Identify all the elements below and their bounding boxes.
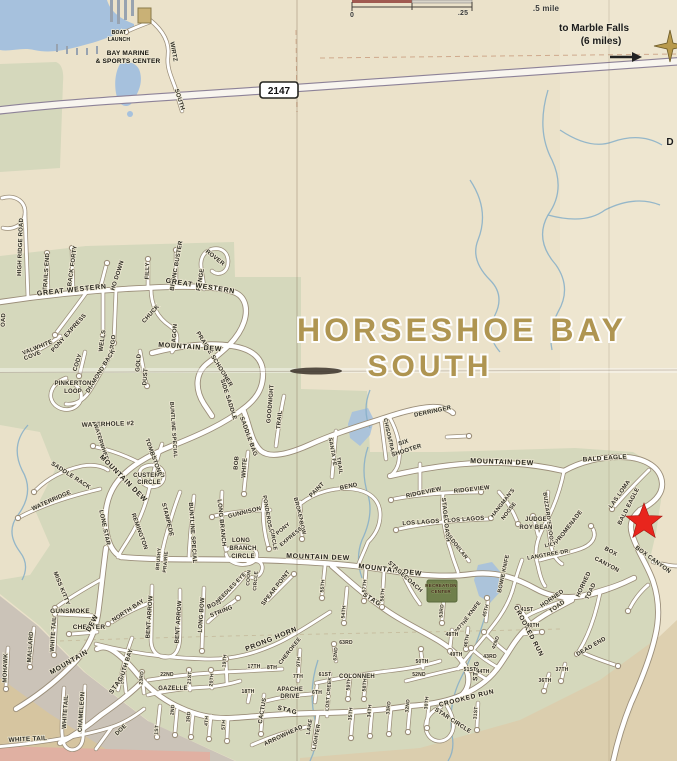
map-label: 2ND xyxy=(170,704,177,715)
map-canvas: 2147 HORSESHOE BAY SOUTH BOATLAUNCHBAY M… xyxy=(0,0,677,761)
map-label: 55TH xyxy=(319,579,326,593)
map-label: 52ND xyxy=(412,672,426,678)
map-label: 44TH xyxy=(476,669,489,675)
map-label: 57TH xyxy=(361,579,368,593)
map-label: 9TH xyxy=(296,656,303,667)
map-label: MOHAWK xyxy=(2,653,9,683)
map-label: JUDGE xyxy=(525,517,547,523)
highway-2147-shield: 2147 xyxy=(260,82,298,98)
map-label: .25 xyxy=(458,10,468,17)
map-label: to Marble Falls xyxy=(559,23,629,34)
map-label: CIRCLE xyxy=(231,554,255,560)
map-label: FILLY xyxy=(145,262,152,279)
map-label: 33RD xyxy=(385,701,392,715)
map-label: 34TH xyxy=(366,704,373,718)
map-label: 36TH xyxy=(538,678,551,684)
map-label: BOB xyxy=(233,455,240,470)
map-label: OAD xyxy=(1,312,7,327)
map-label: 4TH xyxy=(204,715,211,726)
map-label: 62ND xyxy=(332,647,339,661)
highway-shield-number: 2147 xyxy=(268,86,291,97)
map-label: GUNSMOKE xyxy=(50,608,90,615)
map-label: LAUNCH xyxy=(108,37,130,43)
map-label: 8TH xyxy=(267,665,277,671)
map-label: BAY MARINE xyxy=(107,50,150,57)
map-label: 43RD xyxy=(483,654,497,660)
map-label: 19TH xyxy=(221,654,228,668)
map-label: 30TH xyxy=(423,696,430,710)
map-label: 37TH xyxy=(555,667,568,673)
map-label: 48TH xyxy=(445,632,458,638)
map-label: 22ND xyxy=(160,672,174,678)
map-label: APACHE xyxy=(277,687,303,693)
map-label: LOOP xyxy=(64,389,82,395)
map-label: D xyxy=(666,137,673,148)
map-label: 35TH xyxy=(347,707,354,721)
map-label: RECREATION xyxy=(425,583,456,588)
region-title-line1: HORSESHOE BAY xyxy=(297,312,627,348)
map-label: 63RD xyxy=(339,640,353,646)
map-label: DRIVE xyxy=(280,694,299,700)
map-label: 40TH xyxy=(526,623,539,629)
map-label: CENTER xyxy=(431,589,451,594)
map-label: 3RD xyxy=(186,711,193,722)
map-label: CIRCLE xyxy=(137,480,161,486)
map-label: 17TH xyxy=(247,664,260,670)
map-label: (6 miles) xyxy=(581,36,622,47)
map-label: 41ST xyxy=(521,607,534,613)
scanned-map: 2147 HORSESHOE BAY SOUTH BOATLAUNCHBAY M… xyxy=(0,0,677,761)
map-label: 1ST xyxy=(154,725,161,735)
map-label: 23RD xyxy=(138,671,145,685)
map-label: BRANCH xyxy=(229,546,256,552)
map-label: 20TH xyxy=(208,673,215,687)
map-label: 31ST xyxy=(472,706,479,719)
map-label: & SPORTS CENTER xyxy=(96,58,161,65)
map-label: LONG xyxy=(232,538,250,544)
map-label: GAZELLE xyxy=(158,686,187,692)
map-label: 6TH xyxy=(312,690,322,696)
map-label: COLONNEH xyxy=(339,674,375,680)
map-label: 7TH xyxy=(293,674,303,680)
map-label: 32ND xyxy=(404,699,411,713)
sports-center-building xyxy=(138,8,151,23)
map-label: 53RD xyxy=(438,604,445,618)
map-label: 51ST xyxy=(464,667,477,673)
map-label: 50TH xyxy=(415,659,428,665)
map-label: ROY BEAN xyxy=(519,525,552,531)
map-label: 56TH xyxy=(379,588,386,602)
map-label: 58TH xyxy=(361,678,368,692)
map-label: 5TH xyxy=(221,719,228,730)
map-label: PINKERTON xyxy=(54,381,91,387)
map-label: 0 xyxy=(350,12,354,19)
map-label: 49TH xyxy=(449,652,462,658)
map-label: 21ST xyxy=(186,671,193,684)
map-label: 18TH xyxy=(241,689,254,695)
map-label: .5 mile xyxy=(533,4,560,13)
map-label: 54TH xyxy=(340,605,347,619)
region-title-line2: SOUTH xyxy=(368,350,493,383)
map-label: BOAT xyxy=(112,30,127,36)
